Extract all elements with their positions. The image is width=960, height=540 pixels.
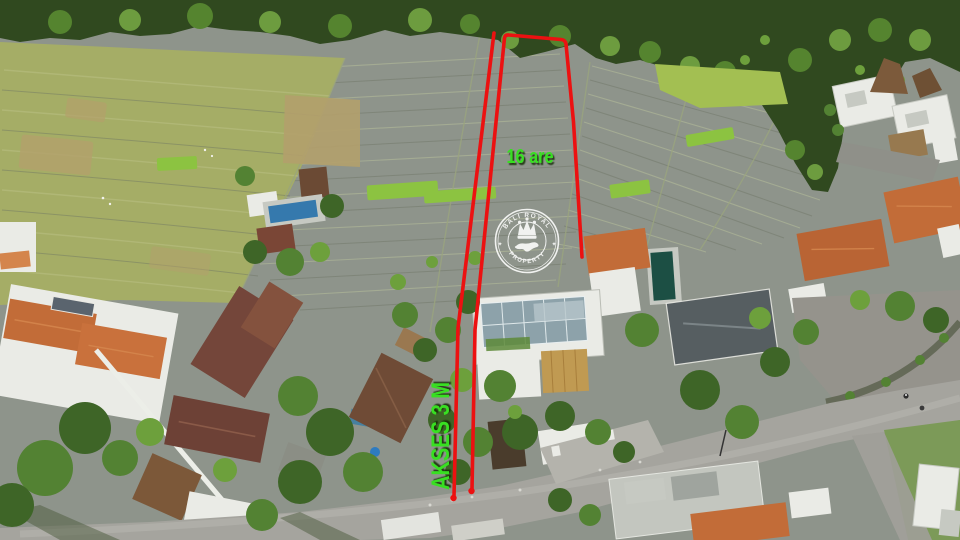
logo-separator-left: ✦ <box>497 241 502 248</box>
boundary-end-dot <box>468 488 474 494</box>
logo-separator-right: ✦ <box>551 241 556 248</box>
orange-hip-roof <box>796 219 889 281</box>
aerial-property-photo: 16 are AKSES 3 M BALI ROYAL PROPERTY ✦ ✦ <box>0 0 960 540</box>
roof-garden <box>486 337 531 351</box>
dirt-lot <box>283 95 360 167</box>
scene: 16 are AKSES 3 M BALI ROYAL PROPERTY ✦ ✦ <box>0 0 960 540</box>
boundary-end-dot <box>450 495 456 501</box>
access-label: AKSES 3 M <box>427 382 455 490</box>
area-label: 16 are <box>507 146 554 168</box>
lap-pool <box>650 251 675 300</box>
gate-post <box>551 445 561 456</box>
rice-seedling-patch <box>157 156 198 171</box>
pavilion-roof <box>299 167 330 200</box>
orange-roof <box>584 228 651 276</box>
lumbung-roof <box>912 68 942 98</box>
